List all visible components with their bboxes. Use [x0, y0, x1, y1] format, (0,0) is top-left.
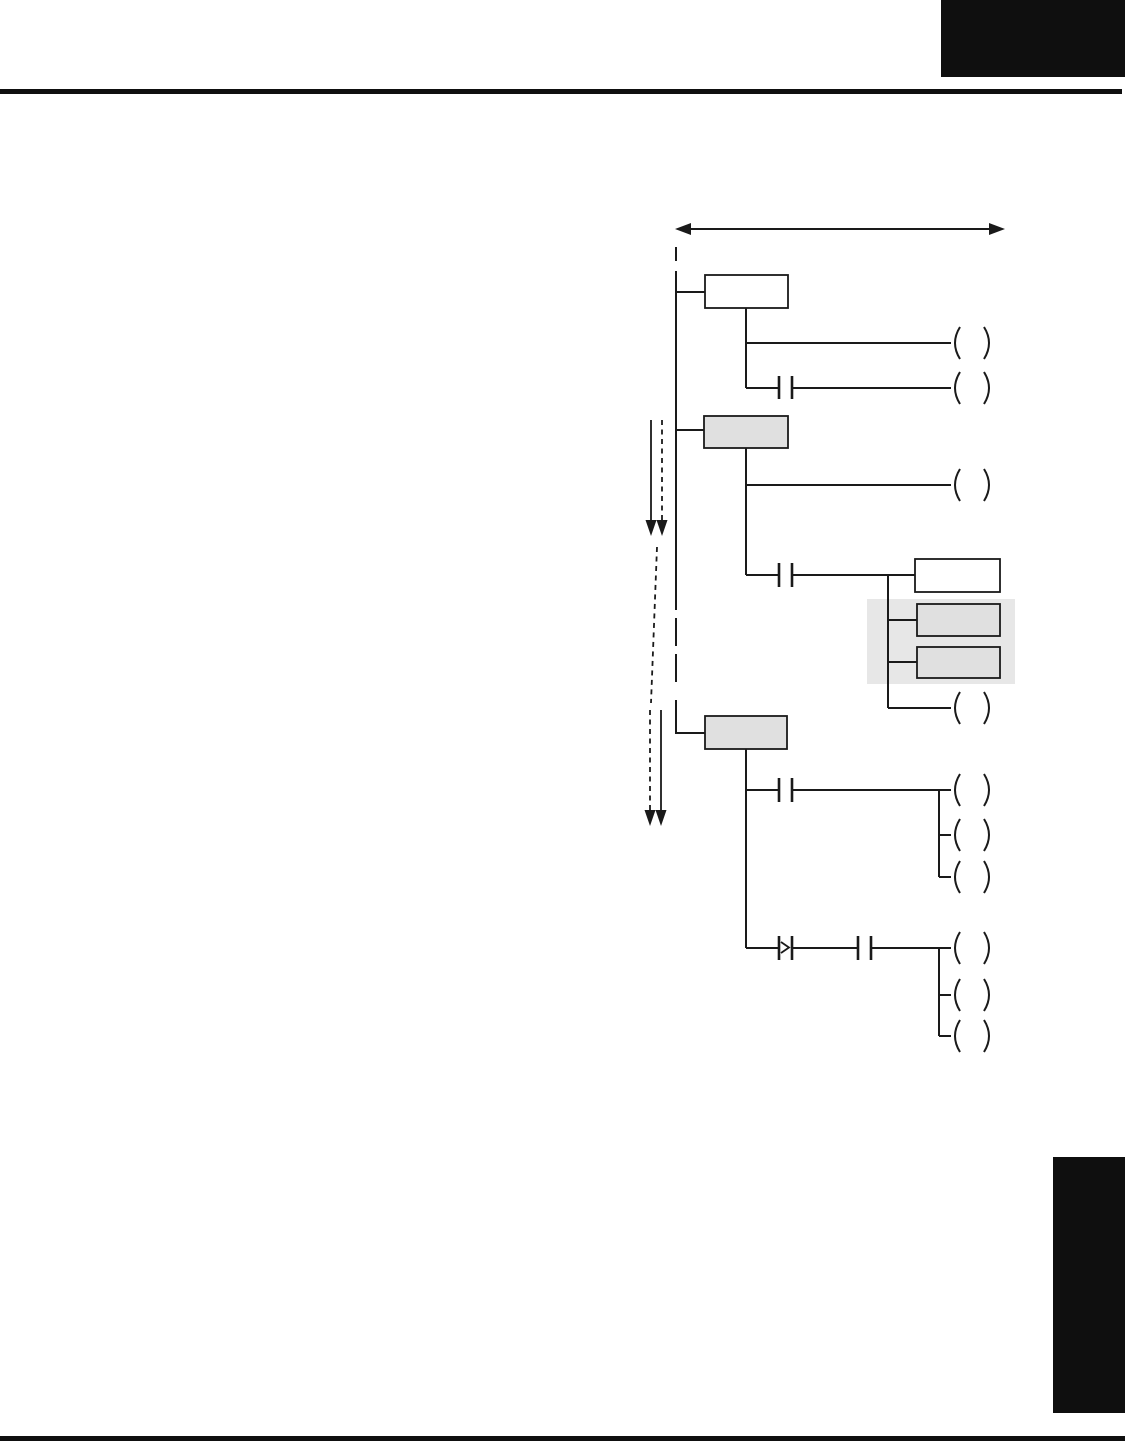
chapter-edge-tab	[1053, 1157, 1125, 1413]
contact	[779, 778, 792, 802]
stage-3-rung-1	[746, 774, 989, 893]
output-coil	[955, 1020, 989, 1052]
function-box	[915, 559, 1000, 592]
output-coil	[955, 372, 989, 404]
output-coil	[955, 932, 989, 964]
stage-1-rung-1	[746, 327, 989, 359]
contact	[779, 563, 792, 587]
parameter-box-2	[917, 647, 1000, 678]
footer-rule	[0, 1436, 1125, 1441]
ladder-stage-diagram	[0, 0, 1125, 1443]
stage-3-rung-2	[746, 932, 989, 1052]
stage-3	[676, 716, 989, 1052]
stage-2	[676, 416, 1015, 724]
manual-page	[0, 0, 1125, 1443]
stage-box-3	[705, 716, 787, 749]
output-coil	[955, 774, 989, 806]
contact	[858, 936, 871, 960]
stage-1-rung-2	[746, 372, 989, 404]
parameter-box-1	[917, 604, 1000, 636]
output-coil	[955, 861, 989, 893]
greater-than-icon	[781, 942, 789, 953]
output-coil	[955, 819, 989, 851]
output-coil	[955, 692, 989, 724]
output-coil	[955, 327, 989, 359]
stage-2-rung-2	[746, 559, 1015, 724]
stage-box-2	[704, 416, 788, 448]
scan-range-arrow-icon	[675, 223, 1005, 235]
output-coil	[955, 979, 989, 1011]
execution-flow-arrows	[645, 420, 668, 826]
stage-1	[676, 275, 989, 404]
output-coil	[955, 469, 989, 501]
compare-contact	[779, 936, 792, 960]
stage-2-rung-1	[746, 469, 989, 501]
contact	[779, 376, 792, 399]
stage-box-1	[705, 275, 788, 308]
